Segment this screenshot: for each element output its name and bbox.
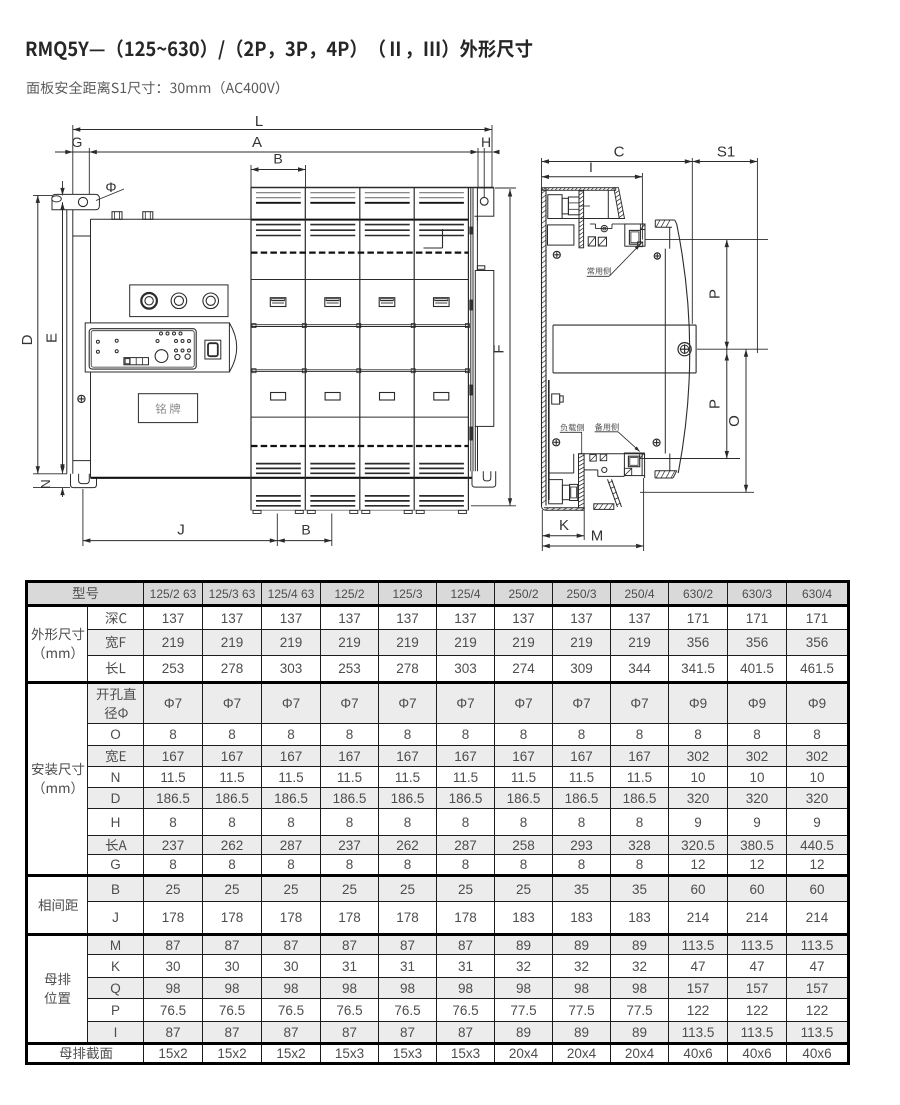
svg-text:M: M (591, 528, 604, 545)
svg-text:G: G (72, 134, 83, 150)
svg-text:A: A (252, 134, 262, 151)
svg-text:B: B (273, 151, 282, 167)
svg-text:P: P (707, 399, 724, 409)
svg-text:P: P (707, 289, 724, 299)
svg-text:N: N (38, 479, 53, 488)
svg-text:D: D (19, 334, 36, 345)
svg-text:B: B (301, 522, 310, 538)
svg-text:C: C (614, 144, 625, 161)
svg-text:J: J (177, 522, 185, 539)
svg-text:I: I (589, 159, 593, 175)
svg-text:S1: S1 (717, 144, 735, 161)
svg-text:K: K (559, 517, 569, 534)
svg-text:E: E (44, 333, 61, 343)
svg-text:O: O (726, 415, 743, 427)
svg-text:H: H (481, 134, 491, 150)
svg-text:L: L (255, 113, 263, 130)
svg-text:F: F (491, 344, 508, 353)
